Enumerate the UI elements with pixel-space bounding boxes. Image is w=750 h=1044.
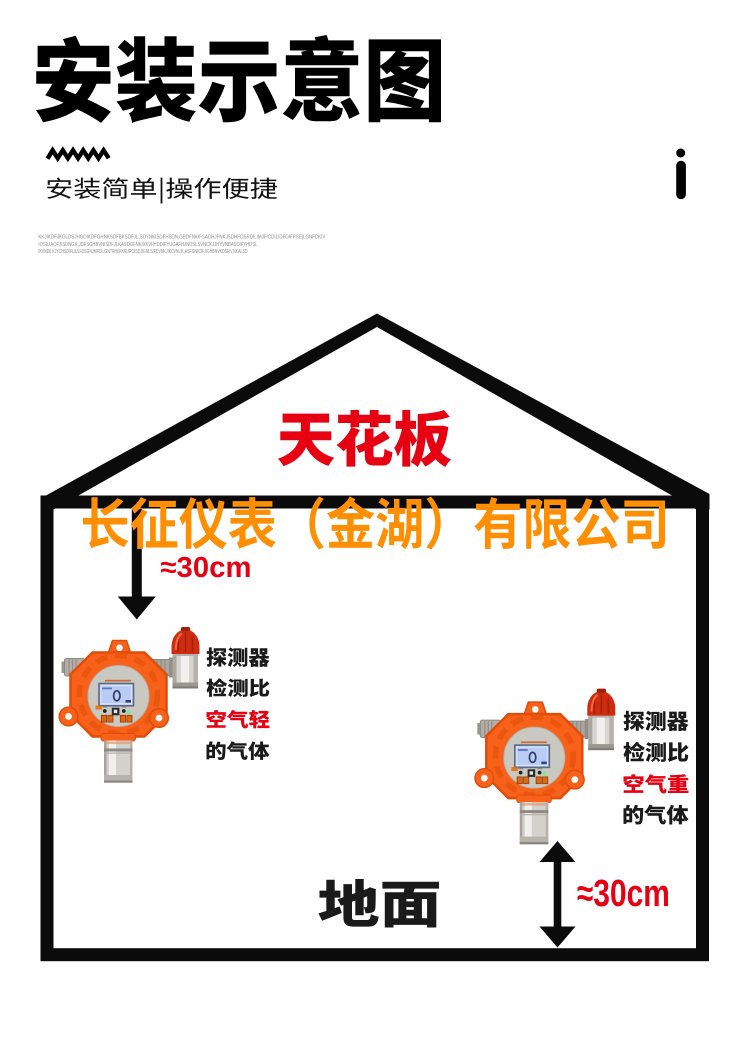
svg-text:IKVNDILKJYCHSDIFLIULFDSGNJMFDL: IKVNDILKJYCHSDIFLIULFDSGNJMFDLIGNTRHLKKR… bbox=[38, 249, 247, 255]
svg-text:IOSILIAOFJISDNGK,JDFSGHBVNISDF: IOSILIAOFJISDNGK,JDFSGHBVNISDFJLKASDGFNK… bbox=[38, 242, 257, 248]
svg-text:KKJIKDFJKGLDSJHGOIKDFGHNKSDFBK: KKJIKDFJKGLDSJHGOIKDFGHNKSDFBKSDFJL,SDYN… bbox=[38, 235, 326, 241]
